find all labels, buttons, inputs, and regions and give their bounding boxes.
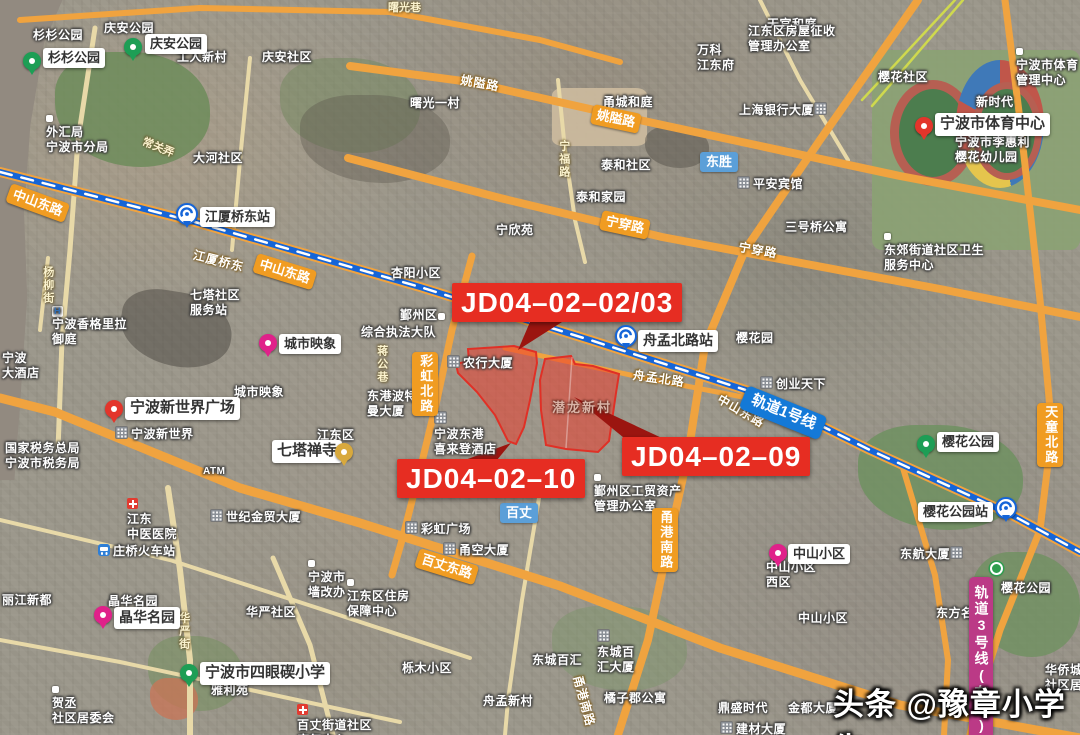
- lane-text-yangliujie: 杨柳街: [40, 266, 54, 305]
- poi-label-jiangxiaqiaodong-station[interactable]: 江厦桥东站: [200, 207, 275, 227]
- dot-icon: [308, 560, 315, 567]
- map-text-atm: ATM: [203, 466, 225, 479]
- map-text-dongcheng-baihui-dasha: 东城百汇大厦: [597, 629, 635, 675]
- undefined: JD04–02–09: [622, 437, 810, 476]
- map-text-donghang-dasha: 东航大厦: [900, 546, 966, 562]
- map-text-shuguang-yicun: 曙光一村: [410, 96, 460, 111]
- map-text-baizhang-kangfu: 百丈街道社区康复中心: [297, 703, 372, 735]
- map-text-yinghuayuan: 樱花园: [736, 331, 774, 346]
- map-text-dingsheng-shidai: 鼎盛时代: [718, 701, 768, 716]
- map-text-shanshan-park: 杉杉公园: [33, 28, 83, 43]
- map-text-caihong-plaza: 彩虹广场: [405, 521, 471, 537]
- map-text-chuangye-tianxia: 创业天下: [760, 376, 826, 392]
- map-text-zhifadadui: 综合执法大队: [361, 325, 436, 340]
- hotel-icon: H: [52, 306, 63, 317]
- map-text-waihuiju: 外汇局宁波市分局: [46, 110, 109, 155]
- pin-chengshi-yingxiang[interactable]: [259, 334, 277, 352]
- map-text-qita-shequ: 七塔社区服务站: [190, 288, 240, 318]
- road-badge-ningchuan-lu: 宁穿路: [599, 210, 651, 240]
- map-text-shangri-la: H宁波香格里拉御庭: [52, 302, 127, 347]
- metro-line3-roundel-icon: [990, 562, 1003, 575]
- road-text-yaoai-lu: 姚隘路: [459, 73, 500, 95]
- map-text-yongkong-dasha: 甬空大厦: [443, 542, 509, 558]
- map-text-jiancai-dasha: 建材大厦: [720, 721, 786, 735]
- dot-icon: [594, 474, 601, 481]
- poi-label-zhoumeng-beilu-station[interactable]: 舟孟北路站: [638, 330, 718, 352]
- map-text-zhufang-baozhang: 江东区住房保障中心: [347, 574, 410, 619]
- map-text-xingyang-xiaoqu: 杏阳小区: [391, 266, 441, 281]
- road-text-ningchuan-lu: 宁穿路: [737, 240, 778, 262]
- building-icon: [210, 509, 223, 522]
- map-text-sheraton: 宁波东港喜来登酒店: [434, 411, 497, 457]
- poi-label-jinghua-mingyuan[interactable]: 晶华名园: [114, 607, 180, 629]
- undefined: JD04–02–10: [397, 459, 585, 498]
- building-icon: [737, 176, 750, 189]
- rail-badge-line1: 轨道1号线: [739, 385, 828, 440]
- map-text-juzijun-gongyu: 橘子郡公寓: [604, 691, 667, 706]
- road-badge-zhongshan-donglu-1: 中山东路: [5, 183, 70, 223]
- pin-zhongshan-xiaoqu[interactable]: [769, 544, 787, 562]
- map-text-sports-admin: 宁波市体育管理中心: [1016, 43, 1079, 88]
- dot-icon: [46, 115, 53, 122]
- metro-icon-zhoumengbeilu[interactable]: [615, 325, 637, 347]
- map-text-qianggaiban: 宁波市墙改办: [308, 555, 346, 600]
- pin-jinghua-mingyuan[interactable]: [94, 606, 112, 624]
- building-icon: [720, 721, 733, 734]
- map-text-pingan-hotel: 平安宾馆: [737, 176, 803, 192]
- road-text-jiangxiaqiaodong: 江厦桥东: [191, 248, 245, 275]
- station-badge-dongsheng: 东胜: [700, 152, 738, 172]
- map-text-dongcheng-baihui: 东城百汇: [532, 653, 582, 668]
- pin-qingan-park[interactable]: [124, 38, 142, 56]
- map-text-huayan-shequ: 华严社区: [246, 605, 296, 620]
- road-text-yonggang-nanlu: 甬港南路: [570, 674, 598, 728]
- undefined: JD04–02–02/03: [452, 283, 682, 322]
- pin-shanshan-park[interactable]: [23, 52, 41, 70]
- map-text-limu-xiaoqu: 栎木小区: [402, 661, 452, 676]
- poi-label-new-world-plaza[interactable]: 宁波新世界广场: [125, 397, 240, 420]
- map-text-chengshi-yingxiang: 城市映象: [234, 385, 284, 400]
- dot-icon: [438, 313, 445, 320]
- road-badge-zhongshan-donglu-2: 中山东路: [252, 253, 317, 290]
- map-text-yinghua-shequ: 樱花社区: [878, 70, 928, 85]
- map-text-yinghua-gongyuan2: 樱花公园: [1001, 581, 1051, 596]
- map-text-shiji-jinmao: 世纪金贸大厦: [210, 509, 301, 525]
- map-text-zhoumeng-xincun: 舟孟新村: [483, 694, 533, 709]
- map-text-lijiang-xindu: 丽江新都: [2, 593, 52, 608]
- lane-text-shuguangxiang: 曙光巷: [388, 2, 421, 16]
- dot-icon: [347, 579, 354, 586]
- map-text-shuiwuju: 国家税务总局宁波市税务局: [5, 441, 80, 471]
- map-text-taihe-shequ: 泰和社区: [601, 158, 651, 173]
- map-text-zhongyi-hospital: 江东中医医院: [127, 497, 177, 542]
- map-text-shanghai-bank: 上海银行大厦: [739, 102, 830, 118]
- road-badge-yonggang-nanlu: 甬港南路: [652, 508, 678, 572]
- poi-label-qingan-park[interactable]: 庆安公园: [145, 34, 207, 54]
- map-text-yinzhouqu: 鄞州区: [400, 308, 448, 323]
- road-badge-tiantong-beilu: 天童北路: [1037, 403, 1063, 467]
- hospital-icon: [297, 704, 308, 715]
- map-text-ningbo-hotel: 宁波大酒店: [2, 351, 40, 381]
- pin-new-world-plaza[interactable]: [105, 400, 123, 418]
- train-icon: [98, 544, 110, 556]
- satellite-map[interactable]: 杉杉公园庆安公园工人新村庆安社区大河社区外汇局宁波市分局曙光巷曙光一村甬城和庭万…: [0, 0, 1080, 735]
- map-text-qingan-shequ: 庆安社区: [262, 50, 312, 65]
- map-text-yaliyuan: 雅利苑: [211, 683, 249, 698]
- map-text-dahe-shequ: 大河社区: [193, 151, 243, 166]
- map-text-hecheng-juweihui: 贺丞社区居委会: [52, 681, 115, 726]
- dot-icon: [884, 233, 891, 240]
- metro-icon-jiangxiaqiaodong[interactable]: [176, 203, 198, 225]
- map-text-wanke-jiangdongfu: 万科江东府: [697, 43, 735, 73]
- map-text-dongjiao-health: 东郊街道社区卫生服务中心: [884, 228, 984, 273]
- road-text-zhoumeng-beilu: 舟孟北路: [632, 368, 686, 390]
- building-icon: [597, 629, 610, 642]
- map-text-zhongshan-xiaoqu2: 中山小区: [798, 611, 848, 626]
- map-text-fangwu-zhengshou: 江东区房屋征收管理办公室: [748, 24, 836, 54]
- metro-icon-yinghuagongyuan[interactable]: [995, 497, 1017, 519]
- lane-text-jianggongxiang: 蒋公巷: [374, 345, 388, 384]
- building-icon: [443, 542, 456, 555]
- dot-icon: [52, 686, 59, 693]
- building-icon: [950, 546, 963, 559]
- station-badge-baizhang: 百丈: [500, 503, 538, 523]
- map-text-portman: 东港波特曼大厦: [367, 389, 417, 419]
- building-icon: [447, 355, 460, 368]
- building-icon: [405, 521, 418, 534]
- dot-icon: [1016, 48, 1023, 55]
- pin-qita-chansi[interactable]: [335, 443, 353, 461]
- map-text-sanhaoqiao: 三号桥公寓: [785, 220, 848, 235]
- lane-text-changguannong: 常关弄: [140, 136, 176, 161]
- poi-label-yinghua-park-station[interactable]: 樱花公园站: [918, 502, 993, 522]
- map-text-qianlong-xincun: 潜龙新村: [552, 400, 612, 416]
- pin-siyanqi-school[interactable]: [180, 664, 198, 682]
- watermark: 头条 @豫章小学生: [833, 679, 1080, 735]
- poi-label-yinghua-park[interactable]: 樱花公园: [937, 432, 999, 452]
- road-badge-caihong-beilu: 彩虹北路: [412, 352, 438, 416]
- poi-label-zhongshan-xiaoqu[interactable]: 中山小区: [788, 544, 850, 564]
- poi-label-siyanqi-school[interactable]: 宁波市四眼碶小学: [200, 662, 330, 685]
- pin-sports-center[interactable]: [915, 117, 933, 135]
- map-text-new-world: 宁波新世界: [115, 426, 194, 442]
- poi-label-sports-center[interactable]: 宁波市体育中心: [935, 113, 1050, 136]
- lane-text-ningfu-lu: 宁福路: [556, 140, 570, 179]
- map-text-xinshidai: 新时代: [976, 95, 1014, 110]
- labels-layer: 杉杉公园庆安公园工人新村庆安社区大河社区外汇局宁波市分局曙光巷曙光一村甬城和庭万…: [0, 0, 1080, 735]
- map-text-jindu-dasha: 金都大厦: [788, 701, 838, 716]
- map-text-taihe-jiayuan: 泰和家园: [576, 190, 626, 205]
- poi-label-chengshi-yingxiang[interactable]: 城市映象: [279, 334, 341, 354]
- poi-label-shanshan-park[interactable]: 杉杉公园: [43, 48, 105, 68]
- poi-label-qita-chansi[interactable]: 七塔禅寺: [272, 440, 342, 463]
- map-text-nonghang-dasha: 农行大厦: [447, 355, 513, 371]
- map-text-ningxinyuan: 宁欣苑: [496, 223, 534, 238]
- building-icon: [814, 102, 827, 115]
- building-icon: [760, 376, 773, 389]
- hospital-icon: [127, 498, 138, 509]
- map-text-zhuangqiao-station: 庄桥火车站: [98, 544, 176, 559]
- pin-yinghua-park[interactable]: [917, 435, 935, 453]
